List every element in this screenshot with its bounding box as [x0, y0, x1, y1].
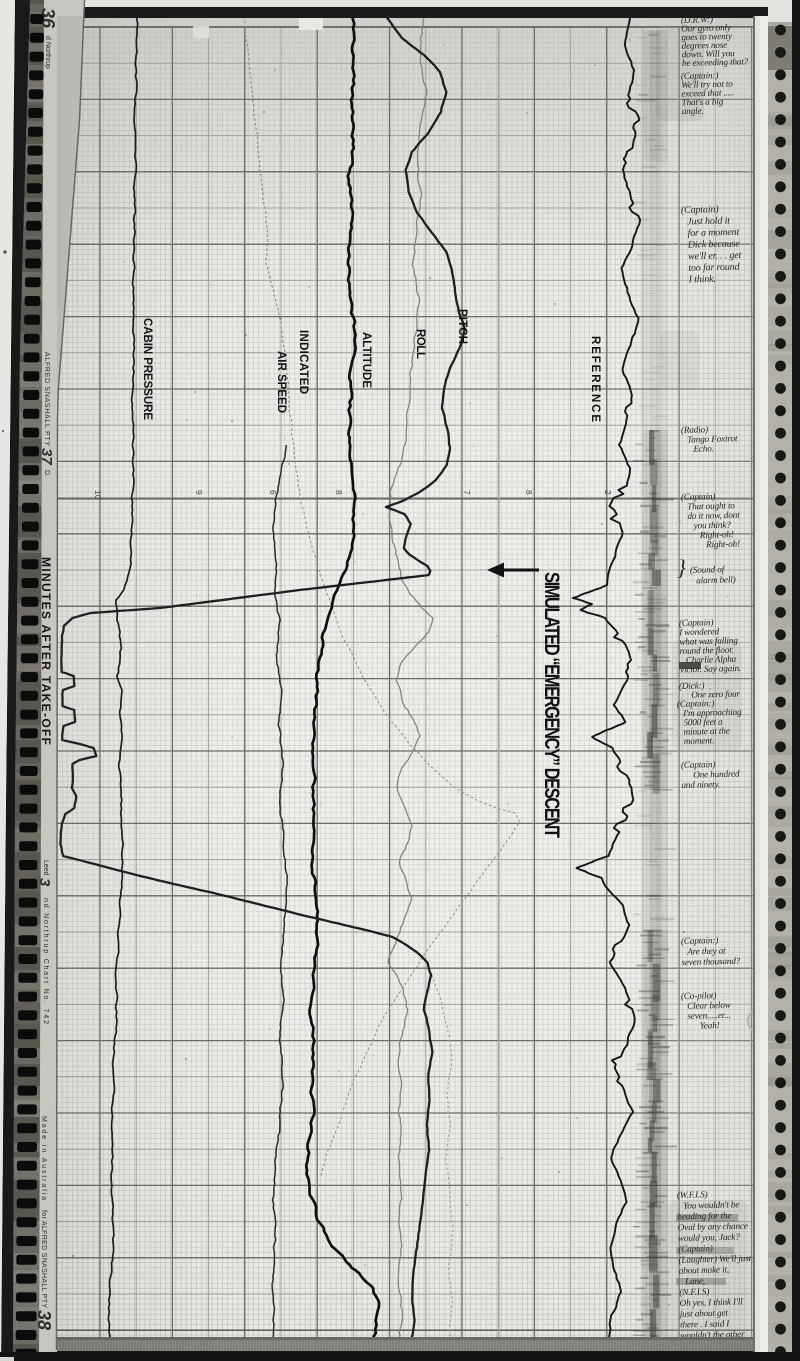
svg-text:D.: D. [43, 470, 50, 477]
svg-text:d Northrup: d Northrup [44, 36, 51, 69]
svg-text:37: 37 [38, 448, 55, 465]
svg-text:3: 3 [36, 878, 53, 887]
svg-text:38: 38 [34, 1310, 54, 1330]
svg-text:for ALFRED SNASHALL PTY: for ALFRED SNASHALL PTY [40, 1210, 47, 1308]
svg-text:nd Northrup Chart No. 742: nd Northrup Chart No. 742 [42, 898, 49, 1024]
svg-text:36: 36 [38, 8, 58, 29]
svg-text:MINUTES AFTER TAKE-OFF: MINUTES AFTER TAKE-OFF [39, 557, 53, 745]
svg-text:Leed: Leed [42, 860, 49, 876]
svg-text:ALFRED SNASHALL PTY: ALFRED SNASHALL PTY [43, 352, 50, 446]
